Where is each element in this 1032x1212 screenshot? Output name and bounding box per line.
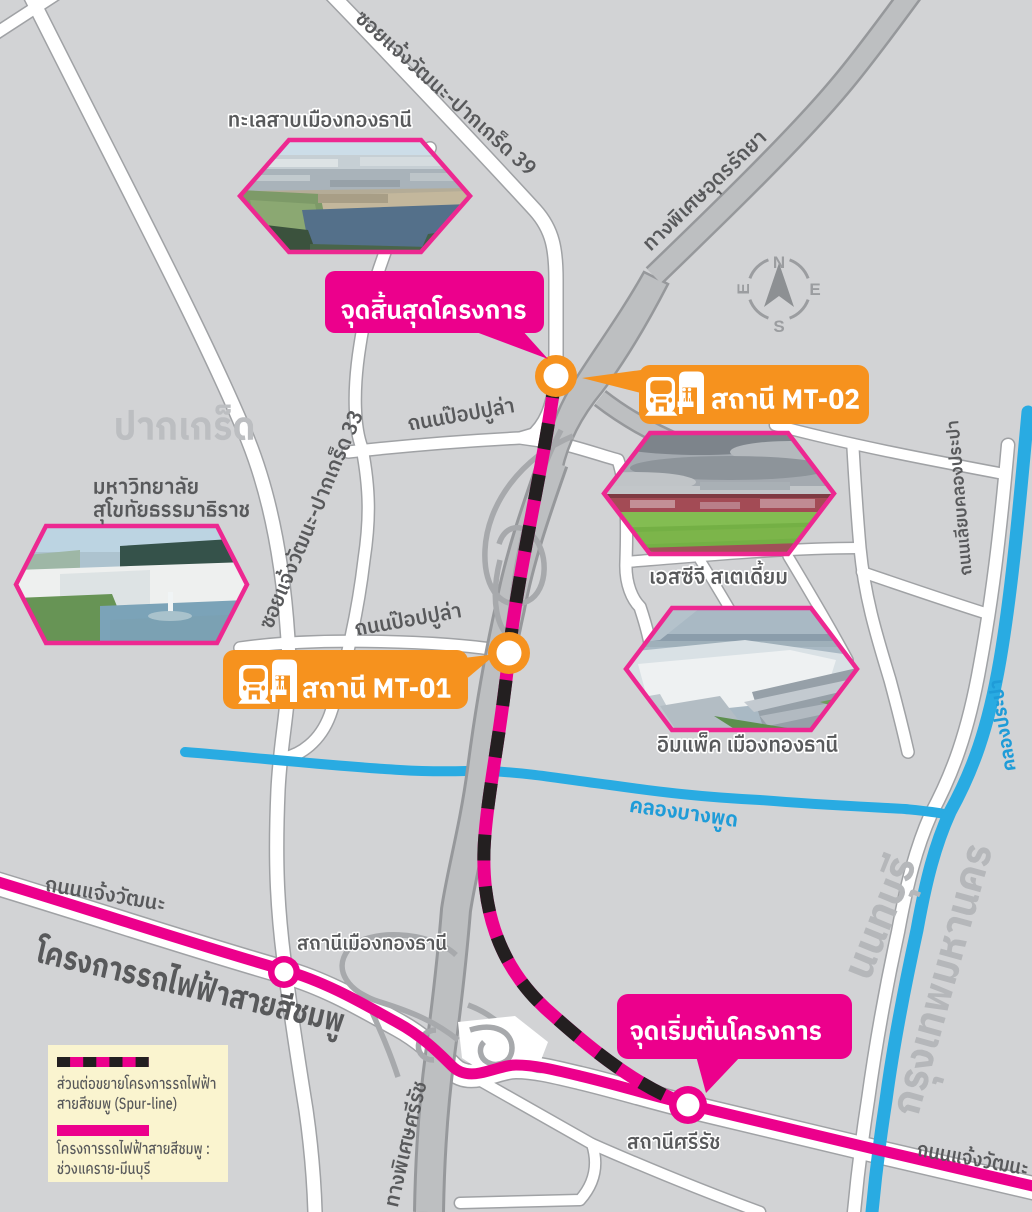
svg-text:N: N	[773, 253, 785, 272]
svg-text:S: S	[773, 317, 784, 336]
svg-text:E: E	[734, 283, 753, 294]
svg-text:E: E	[809, 280, 820, 299]
